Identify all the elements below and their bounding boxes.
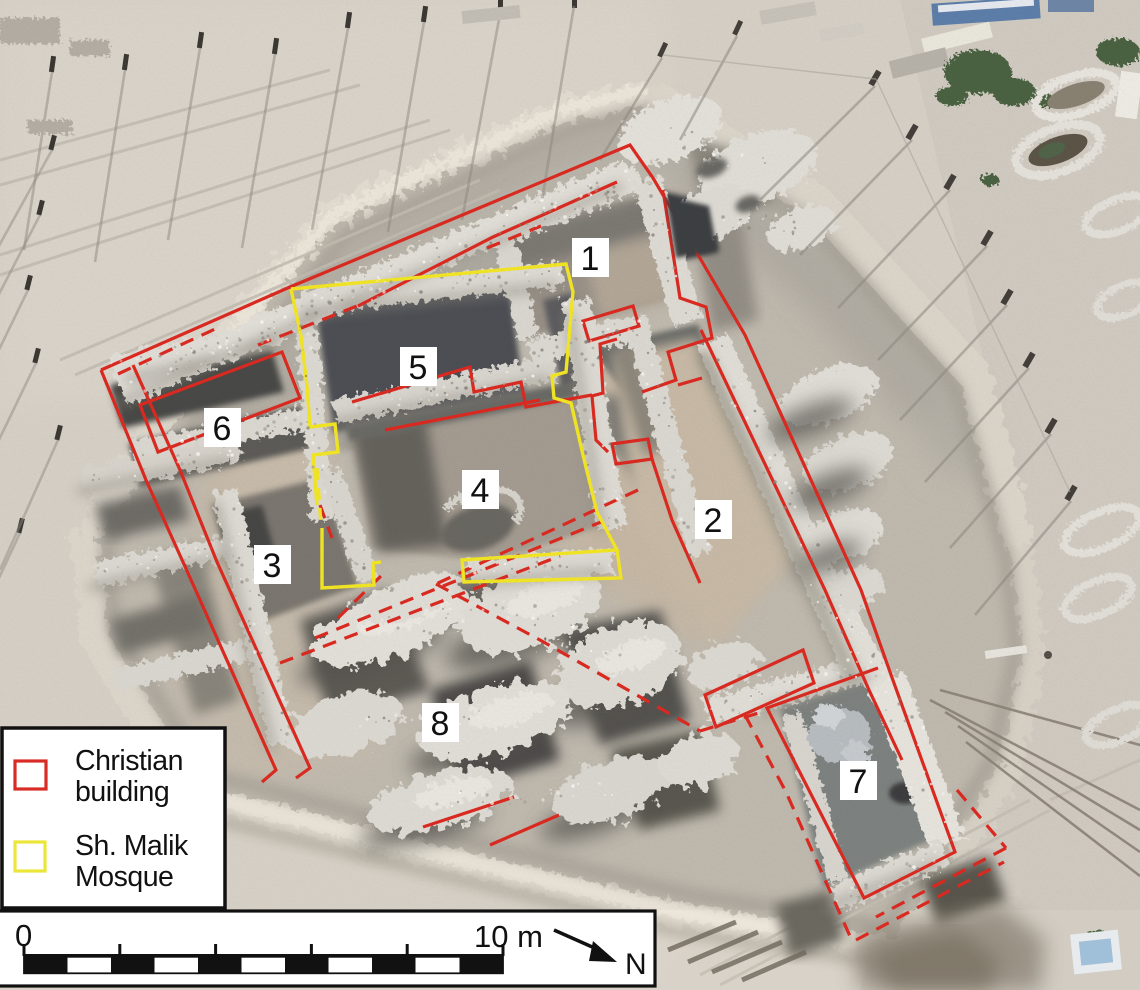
svg-text:6: 6 <box>213 410 232 448</box>
svg-text:2: 2 <box>704 502 723 540</box>
svg-text:Christian: Christian <box>75 745 183 777</box>
svg-text:3: 3 <box>263 547 282 585</box>
svg-text:8: 8 <box>431 705 450 743</box>
svg-text:Sh. Malik: Sh. Malik <box>75 830 189 862</box>
svg-text:10 m: 10 m <box>474 919 543 954</box>
svg-text:7: 7 <box>849 763 868 801</box>
svg-text:Mosque: Mosque <box>75 861 173 893</box>
svg-text:4: 4 <box>471 472 490 510</box>
svg-text:N: N <box>625 948 647 981</box>
svg-text:5: 5 <box>409 349 428 387</box>
svg-text:1: 1 <box>581 240 600 278</box>
svg-text:building: building <box>75 776 169 808</box>
